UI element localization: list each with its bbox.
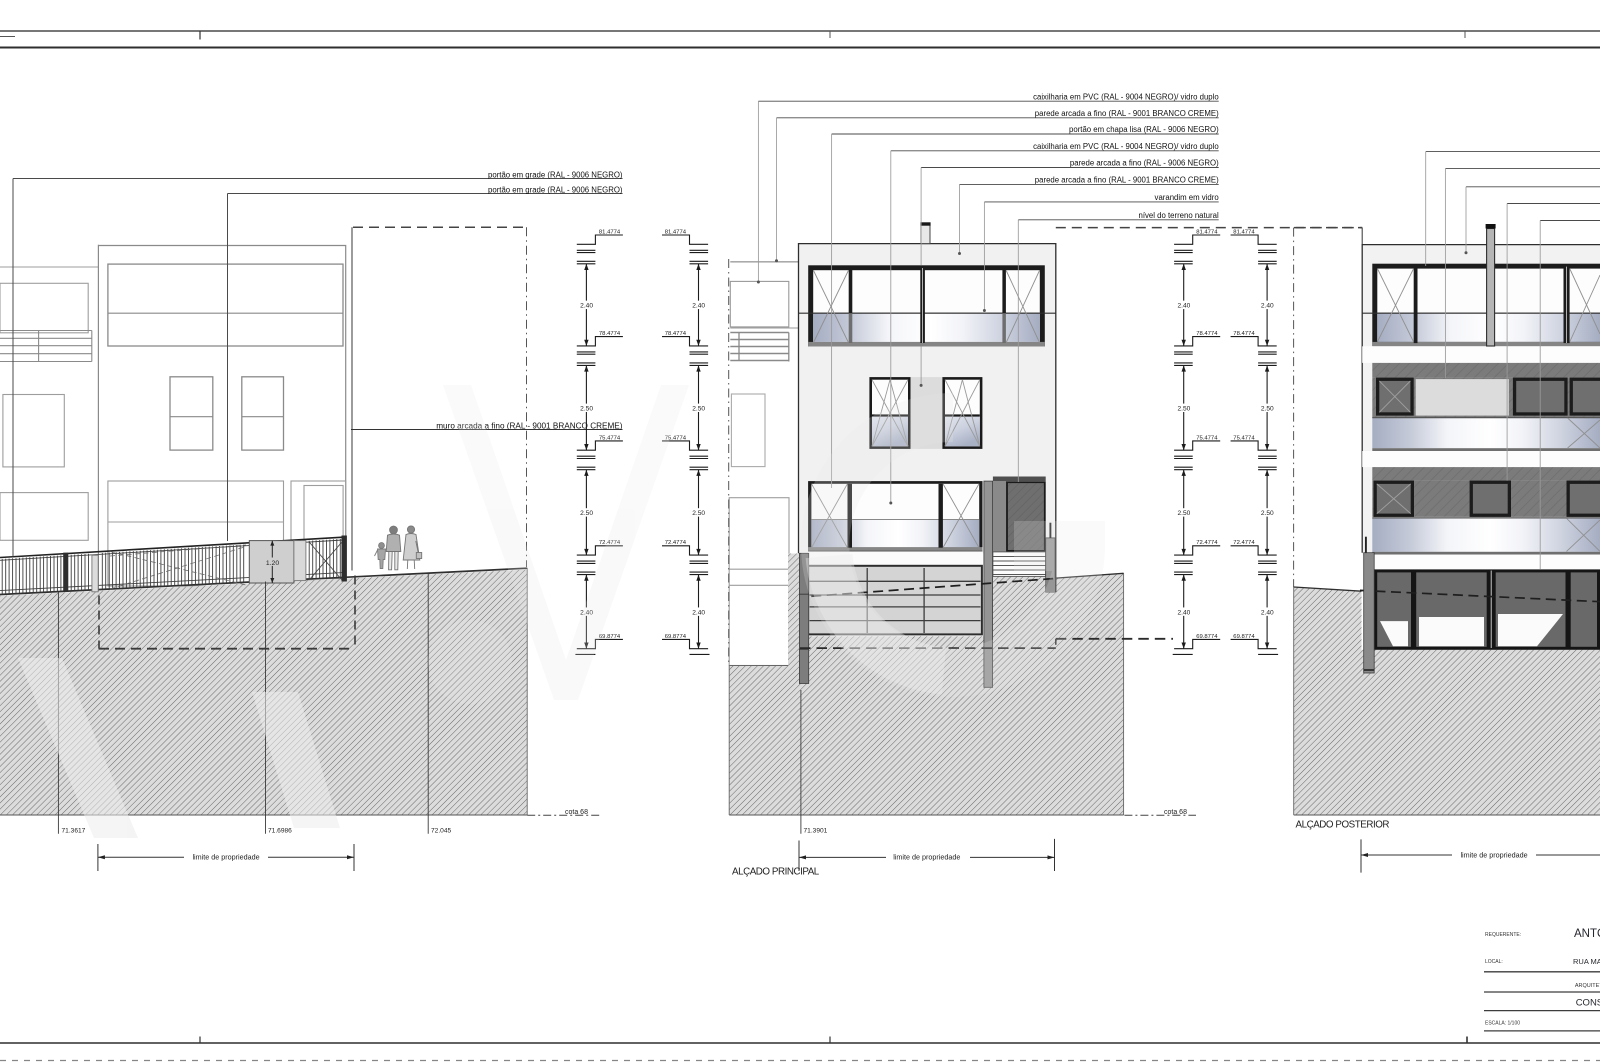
svg-text:2.40: 2.40 <box>1177 609 1190 616</box>
svg-text:72.4774: 72.4774 <box>1233 540 1255 546</box>
svg-text:CONSTRUÇÃO: CONSTRUÇÃO <box>1576 998 1600 1009</box>
svg-text:ARQUITETO: ARQUITETO <box>1575 983 1600 989</box>
svg-text:nível do terreno natural: nível do terreno natural <box>1139 211 1219 220</box>
svg-text:2.40: 2.40 <box>692 609 705 616</box>
svg-text:limite de propriedade: limite de propriedade <box>192 852 259 861</box>
svg-text:2.40: 2.40 <box>580 302 593 309</box>
svg-text:limite de propriedade: limite de propriedade <box>1460 851 1527 860</box>
svg-text:81.4774: 81.4774 <box>665 229 687 235</box>
svg-text:81.4774: 81.4774 <box>599 229 621 235</box>
svg-text:ALÇADO PRINCIPAL: ALÇADO PRINCIPAL <box>732 867 820 878</box>
svg-text:69.8774: 69.8774 <box>1196 634 1218 640</box>
svg-text:2.40: 2.40 <box>1261 609 1274 616</box>
svg-text:75.4774: 75.4774 <box>599 435 621 441</box>
svg-text:72.045: 72.045 <box>431 827 452 834</box>
svg-text:69.8774: 69.8774 <box>1233 634 1255 640</box>
svg-text:81.4774: 81.4774 <box>1233 229 1255 235</box>
svg-text:69.8774: 69.8774 <box>665 634 687 640</box>
svg-text:RUA MANUEL: RUA MANUEL <box>1573 957 1600 966</box>
svg-text:2.50: 2.50 <box>580 510 593 517</box>
svg-text:portão em chapa lisa (RAL - 90: portão em chapa lisa (RAL - 9006 NEGRO) <box>1069 125 1219 134</box>
svg-text:2.50: 2.50 <box>692 510 705 517</box>
svg-text:2.50: 2.50 <box>1177 510 1190 517</box>
svg-text:REQUERENTE:: REQUERENTE: <box>1485 932 1521 938</box>
svg-text:2.50: 2.50 <box>1261 405 1274 412</box>
svg-text:ALÇADO POSTERIOR: ALÇADO POSTERIOR <box>1296 819 1390 830</box>
svg-text:LOCAL:: LOCAL: <box>1485 959 1503 965</box>
svg-text:portão em grade (RAL - 9006 NE: portão em grade (RAL - 9006 NEGRO) <box>488 185 623 194</box>
svg-text:ANTÓNIO: ANTÓNIO <box>1574 927 1600 940</box>
svg-text:2.40: 2.40 <box>692 302 705 309</box>
svg-text:2.50: 2.50 <box>692 405 705 412</box>
svg-text:portão em grade (RAL - 9006 NE: portão em grade (RAL - 9006 NEGRO) <box>488 170 623 179</box>
svg-text:72.4774: 72.4774 <box>665 540 687 546</box>
svg-text:2.40: 2.40 <box>1177 302 1190 309</box>
svg-text:caixilharia em PVC (RAL - 9004: caixilharia em PVC (RAL - 9004 NEGRO)/ v… <box>1033 142 1219 151</box>
svg-text:cota 68: cota 68 <box>1164 809 1187 816</box>
svg-text:78.4774: 78.4774 <box>1233 331 1255 337</box>
svg-text:75.4774: 75.4774 <box>1196 435 1218 441</box>
svg-text:varandim em vidro: varandim em vidro <box>1155 193 1220 202</box>
svg-text:72.4774: 72.4774 <box>1196 540 1218 546</box>
svg-text:2.50: 2.50 <box>1177 405 1190 412</box>
svg-text:ESCALA: 1/100: ESCALA: 1/100 <box>1485 1020 1520 1026</box>
svg-text:limite de propriedade: limite de propriedade <box>893 852 960 861</box>
svg-text:parede arcada a fino (RAL - 90: parede arcada a fino (RAL - 9001 BRANCO … <box>1035 176 1219 185</box>
svg-text:81.4774: 81.4774 <box>1196 229 1218 235</box>
svg-text:parede arcada a fino (RAL - 90: parede arcada a fino (RAL - 9006 NEGRO) <box>1070 159 1219 168</box>
svg-text:1.20: 1.20 <box>266 560 279 567</box>
svg-text:78.4774: 78.4774 <box>1196 331 1218 337</box>
svg-text:75.4774: 75.4774 <box>1233 435 1255 441</box>
svg-text:78.4774: 78.4774 <box>665 331 687 337</box>
svg-text:caixilharia em PVC (RAL - 9004: caixilharia em PVC (RAL - 9004 NEGRO)/ v… <box>1033 92 1219 101</box>
svg-text:78.4774: 78.4774 <box>599 331 621 337</box>
svg-text:2.50: 2.50 <box>1261 510 1274 517</box>
svg-text:71.3617: 71.3617 <box>62 827 86 834</box>
svg-text:71.3901: 71.3901 <box>804 827 828 834</box>
svg-text:parede arcada a fino (RAL - 90: parede arcada a fino (RAL - 9001 BRANCO … <box>1035 109 1219 118</box>
svg-text:69.8774: 69.8774 <box>599 634 621 640</box>
svg-text:71.6986: 71.6986 <box>268 827 292 834</box>
svg-text:2.40: 2.40 <box>1261 302 1274 309</box>
svg-text:cota 68: cota 68 <box>565 809 588 816</box>
svg-text:2.50: 2.50 <box>580 405 593 412</box>
